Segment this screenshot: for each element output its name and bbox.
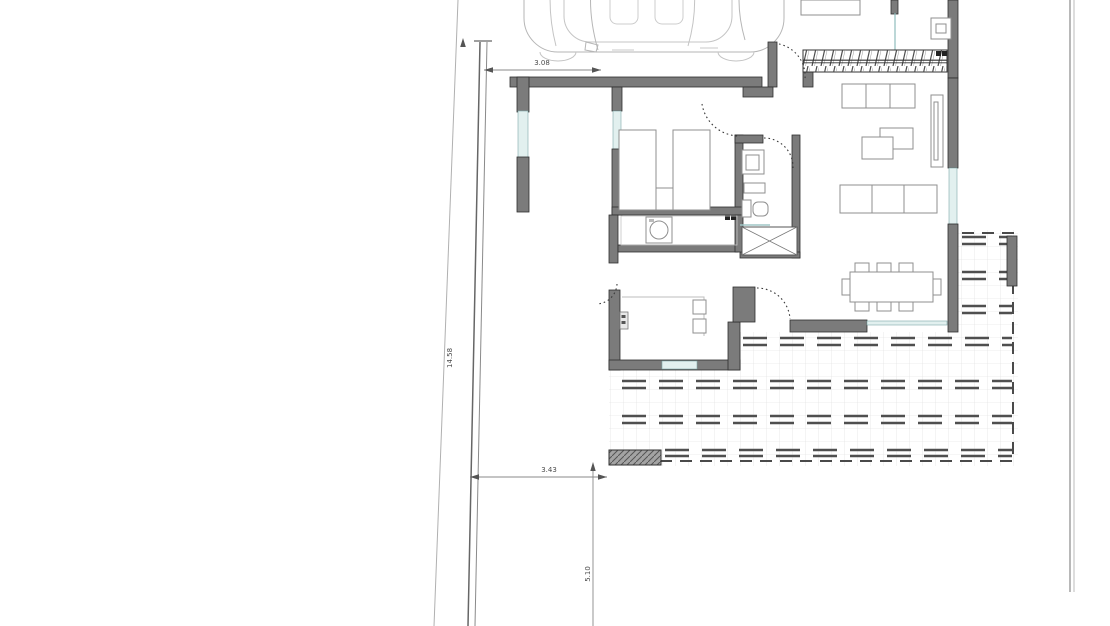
- dim-label-vertical: 5.10: [584, 566, 592, 582]
- dining-chair: [899, 302, 913, 311]
- terrace-step: [609, 450, 661, 465]
- bed-right: [673, 130, 710, 210]
- window-living-room: [949, 168, 957, 224]
- sliding-glass-door: [867, 321, 947, 325]
- toilet-bowl: [753, 202, 768, 216]
- laundry-corridor: [621, 216, 737, 245]
- door-arc-bathroom: [764, 138, 793, 168]
- car-icon: [524, 0, 784, 61]
- dim-label-bottom: 3.43: [541, 466, 557, 474]
- sofa-top: [842, 84, 915, 108]
- double-bed: [801, 0, 860, 15]
- bathroom-fixtures: [740, 150, 797, 255]
- door-arc-entry: [779, 44, 805, 79]
- window-kitchen: [662, 361, 697, 369]
- dining-chair: [877, 263, 891, 272]
- sofa-long: [840, 185, 937, 213]
- floor-plan-canvas: 3.08 14.58 3.43 5.10: [0, 0, 1110, 626]
- tv-sideboard: [931, 95, 943, 167]
- bedroom-secondary-furniture: [801, 0, 951, 39]
- dining-chair: [855, 302, 869, 311]
- floor-plan-svg: 3.08 14.58 3.43 5.10: [0, 0, 1110, 626]
- dimension-bottom-width: 3.43: [470, 466, 607, 480]
- kitchen-hob: [620, 312, 628, 329]
- dim-label-left: 14.58: [446, 348, 454, 368]
- laundry-counter: [621, 216, 737, 245]
- shelf: [744, 183, 765, 193]
- door-arc-terrace: [757, 288, 790, 319]
- coffee-table-2: [862, 137, 893, 159]
- kitchen-appliance: [693, 319, 706, 333]
- bed-left: [619, 130, 656, 210]
- living-room-furniture: [840, 84, 943, 213]
- dimension-top-width: 3.08: [484, 59, 601, 73]
- dining-table: [850, 272, 933, 302]
- window-carport-side: [518, 111, 528, 158]
- washbasin-top: [931, 18, 951, 39]
- dining-chair: [855, 263, 869, 272]
- dimension-left-length: 14.58: [446, 38, 466, 368]
- staircase: [803, 50, 947, 72]
- dining-set: [842, 263, 941, 311]
- kitchen-appliance: [693, 300, 706, 314]
- plot-boundary-left: [434, 0, 492, 626]
- kitchen-unit: [620, 297, 706, 336]
- nightstand: [656, 188, 673, 210]
- dining-chair: [877, 302, 891, 311]
- toilet-tank: [742, 200, 751, 217]
- dining-chair: [933, 279, 941, 295]
- dim-label-top: 3.08: [534, 59, 550, 67]
- dimension-bottom-length: 5.10: [584, 462, 596, 626]
- plot-boundary-right: [1070, 0, 1074, 592]
- bedroom-main-furniture: [619, 130, 710, 210]
- kitchen-counter: [622, 297, 704, 336]
- dining-chair: [842, 279, 850, 295]
- dining-chair: [899, 263, 913, 272]
